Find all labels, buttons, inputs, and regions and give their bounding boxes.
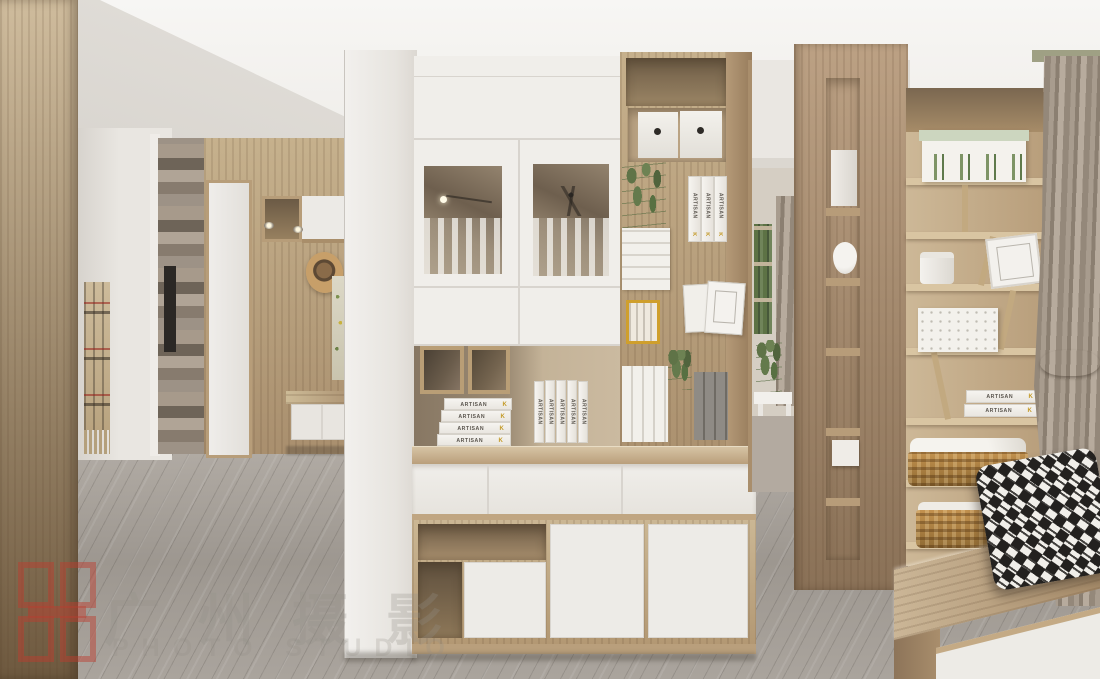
- artisan-book-vertical: ARTISAN: [534, 381, 544, 443]
- artisan-book: ARTISANK: [444, 398, 512, 410]
- white-ornament: [831, 150, 857, 206]
- artisan-book: ARTISANK: [437, 434, 511, 446]
- scarf-fringe: [84, 430, 110, 454]
- artisan-book-vertical: ARTISAN: [578, 381, 588, 443]
- artisan-book: ARTISANK: [441, 410, 511, 422]
- cabinet-track-line: [414, 76, 622, 77]
- gray-book-row: [694, 372, 728, 440]
- shelf-board: [906, 284, 1046, 291]
- mirror-ceiling: [752, 60, 794, 160]
- artisan-book-vertical: ARTISANK: [701, 176, 714, 242]
- cubby-shelf: [826, 278, 860, 286]
- box-handle-hole: [697, 127, 704, 134]
- counter-top: [412, 446, 764, 465]
- mirror-beam: [752, 158, 794, 168]
- artisan-book-vertical: ARTISANK: [714, 176, 727, 242]
- lamp-reflection: [440, 196, 447, 203]
- watermark-logo-cell: [60, 616, 96, 662]
- white-jar: [920, 252, 954, 284]
- hall-wardrobe-door: [206, 180, 252, 458]
- white-box-small: [832, 440, 859, 466]
- leaning-frame: [985, 233, 1043, 289]
- watermark-en-text: PHOTO STUDIO: [112, 634, 458, 663]
- cactus-print-box: [922, 130, 1026, 182]
- framed-window: [468, 346, 510, 394]
- watermark-logo-bar: [28, 606, 86, 618]
- glass-door-left: [424, 166, 502, 274]
- curtain-reflection: [533, 218, 609, 276]
- mirror-plant: [756, 340, 782, 396]
- box-handle-hole: [654, 128, 661, 135]
- mirror-opening: [752, 60, 794, 492]
- mirror-green-books: [754, 224, 772, 334]
- cactus-box-lid: [919, 130, 1029, 141]
- shelf-board: [906, 418, 1046, 425]
- right-shelf-top-shadow: [906, 88, 1046, 132]
- storage-box: [680, 111, 722, 158]
- cubby-shelf: [826, 348, 860, 356]
- tv-slab: [164, 266, 176, 352]
- artisan-book: ARTISANK: [439, 422, 511, 434]
- mirror-floor: [752, 416, 794, 492]
- white-picture-frame: [704, 281, 746, 336]
- artisan-book-vertical: ARTISAN: [556, 380, 566, 443]
- white-book-row: [622, 366, 668, 442]
- houndstooth-pillow: [974, 446, 1100, 591]
- hall-upper-nook: [262, 196, 302, 242]
- framed-window: [420, 346, 464, 394]
- partition-panel: [344, 50, 417, 658]
- hall-bench-seam: [321, 405, 323, 439]
- frame-inner-line: [713, 290, 737, 323]
- cabinet-door: [550, 524, 644, 638]
- cubby-shelf: [826, 428, 860, 436]
- hanging-plant: [622, 162, 666, 238]
- cabinet-door: [648, 524, 748, 638]
- watermark-logo-cell: [60, 562, 96, 608]
- lamp-arm-reflection: [446, 195, 492, 203]
- glass-door-right: [533, 164, 609, 276]
- spider-lamp-reflection: [543, 186, 599, 216]
- artisan-book: ARTISANK: [966, 390, 1042, 403]
- cubby-shelf: [826, 208, 860, 216]
- console-drawers: [412, 464, 756, 516]
- drawer-seam: [621, 466, 623, 514]
- plaid-scarf: [84, 282, 110, 430]
- interior-photo: ARTISANK ARTISANK ARTISANK ARTISANK ARTI…: [0, 0, 1100, 679]
- watermark-logo-cell: [18, 616, 54, 662]
- curtain-tie-band: [1040, 350, 1100, 376]
- ceiling-spotlight: [293, 226, 303, 233]
- frame-inner-line: [996, 243, 1034, 281]
- mirror-desk: [754, 392, 792, 404]
- storage-box: [638, 112, 678, 158]
- artisan-book-vertical: ARTISAN: [545, 380, 555, 443]
- artisan-book: ARTISANK: [964, 404, 1042, 417]
- shelf-plant: [668, 350, 692, 390]
- tower-top-shelf: [626, 58, 726, 106]
- watermark-logo: [18, 562, 96, 662]
- artisan-book-vertical: ARTISANK: [688, 176, 701, 242]
- dotted-box: [918, 308, 998, 352]
- watermark-logo-cell: [18, 562, 54, 608]
- ceiling-spotlight: [264, 222, 274, 229]
- artisan-book-vertical: ARTISAN: [567, 380, 577, 443]
- shelf-divider: [962, 185, 968, 232]
- curtain-reflection: [424, 218, 502, 274]
- cubby-shelf: [826, 498, 860, 506]
- white-box-stack: [622, 228, 670, 290]
- cactus-print-row: [926, 154, 1022, 180]
- lower-open-cubby: [418, 524, 546, 560]
- hall-upper-cabinet: [302, 196, 345, 243]
- cabinet-seam-v: [518, 140, 520, 344]
- gold-frame-books: [626, 300, 660, 344]
- drawer-seam: [487, 466, 489, 514]
